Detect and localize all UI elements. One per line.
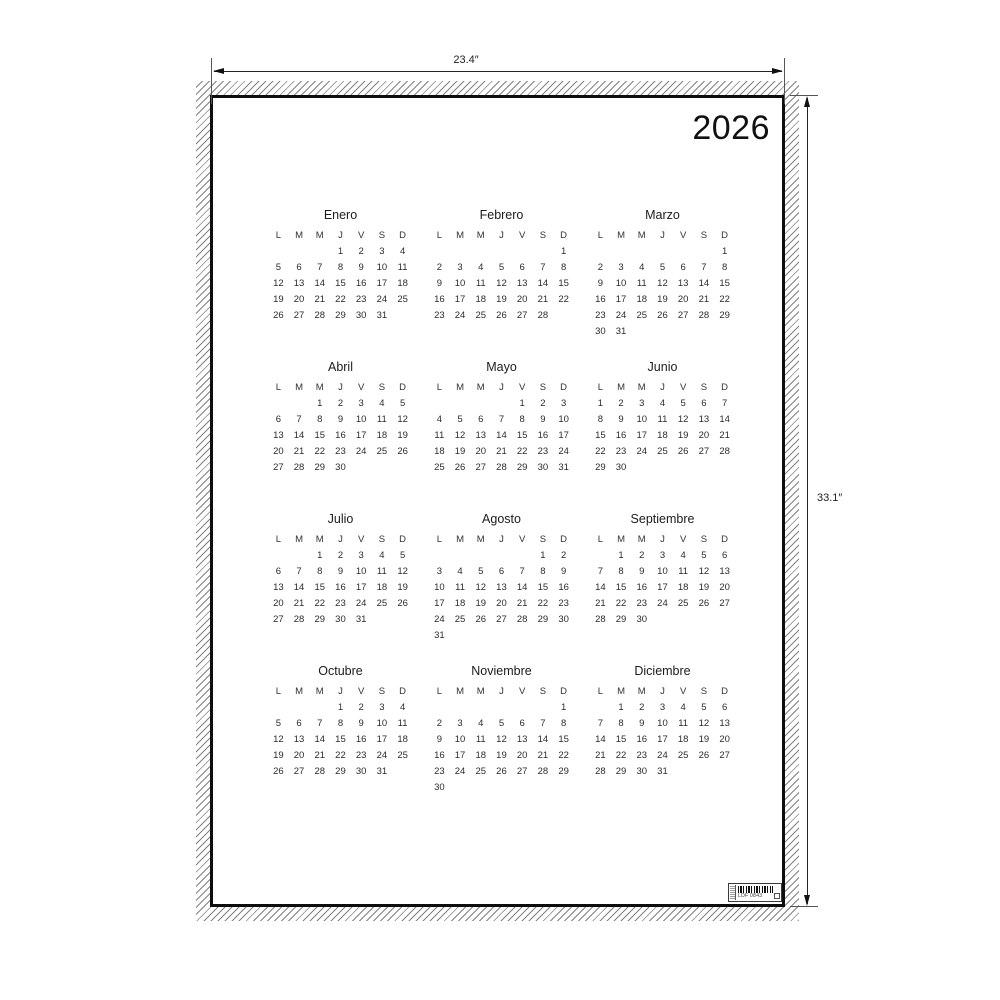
day-cell: 29 (611, 763, 632, 779)
day-cell: 30 (631, 763, 652, 779)
day-cell: 24 (611, 307, 632, 323)
day-cell: 21 (533, 291, 554, 307)
month-block: NoviembreLMMJVSD123456789101112131415161… (429, 661, 574, 813)
empty-day-cell (673, 243, 694, 259)
day-cell: 17 (652, 579, 673, 595)
weekday-header: J (491, 227, 512, 243)
day-cell: 21 (289, 595, 310, 611)
week-row: 11121314151617 (429, 427, 574, 443)
empty-day-cell (470, 699, 491, 715)
day-cell: 25 (392, 747, 413, 763)
day-cell: 4 (673, 547, 694, 563)
height-dimension-label: 33.1″ (814, 492, 845, 504)
day-cell: 1 (590, 395, 611, 411)
day-cell: 14 (590, 579, 611, 595)
day-cell: 12 (491, 275, 512, 291)
day-cell: 4 (372, 547, 393, 563)
month-table: LMMJVSD123456789101112131415161718192021… (429, 379, 574, 475)
weekday-header: S (533, 531, 554, 547)
week-row: 13141516171819 (268, 427, 413, 443)
week-row: 1 (590, 243, 735, 259)
empty-day-cell (512, 547, 533, 563)
day-cell: 21 (309, 747, 330, 763)
empty-day-cell (590, 243, 611, 259)
weekday-header: S (694, 683, 715, 699)
week-row: 123 (429, 395, 574, 411)
empty-day-cell (429, 699, 450, 715)
day-cell: 13 (289, 275, 310, 291)
week-row: 123456 (590, 699, 735, 715)
day-cell: 7 (309, 715, 330, 731)
week-row: 2345678 (429, 715, 574, 731)
weekday-header: M (450, 683, 471, 699)
day-cell: 8 (553, 259, 574, 275)
weekday-header: S (372, 379, 393, 395)
weekday-header: D (392, 683, 413, 699)
week-row: 2930 (590, 459, 735, 475)
month-title: Marzo (590, 205, 735, 225)
weekday-header: M (631, 379, 652, 395)
empty-day-cell (512, 779, 533, 795)
day-cell: 20 (694, 427, 715, 443)
weekday-header: J (491, 683, 512, 699)
day-cell: 5 (268, 259, 289, 275)
day-cell: 9 (330, 563, 351, 579)
day-cell: 11 (470, 731, 491, 747)
day-cell: 18 (673, 731, 694, 747)
day-cell: 22 (533, 595, 554, 611)
day-cell: 10 (351, 411, 372, 427)
week-row: 123456 (590, 547, 735, 563)
month-table: LMMJVSD123456789101112131415161718192021… (590, 683, 735, 779)
weekday-header-row: LMMJVSD (429, 683, 574, 699)
day-cell: 20 (491, 595, 512, 611)
day-cell: 1 (309, 547, 330, 563)
month-block: JulioLMMJVSD1234567891011121314151617181… (268, 509, 413, 661)
day-cell: 29 (533, 611, 554, 627)
height-extension-tick-bottom (790, 906, 818, 907)
day-cell: 19 (268, 291, 289, 307)
empty-day-cell (450, 395, 471, 411)
empty-day-cell (450, 779, 471, 795)
empty-day-cell (268, 699, 289, 715)
day-cell: 11 (470, 275, 491, 291)
month-table: LMMJVSD123456789101112131415161718192021… (429, 531, 574, 643)
empty-day-cell (351, 459, 372, 475)
weekday-header: J (652, 531, 673, 547)
day-cell: 3 (631, 395, 652, 411)
day-cell: 8 (714, 259, 735, 275)
day-cell: 7 (491, 411, 512, 427)
weekday-header: M (309, 531, 330, 547)
day-cell: 27 (714, 747, 735, 763)
day-cell: 15 (512, 427, 533, 443)
barcode-icon (738, 886, 773, 893)
day-cell: 8 (590, 411, 611, 427)
empty-day-cell (429, 243, 450, 259)
weekday-header: L (590, 531, 611, 547)
week-row: 2345678 (429, 259, 574, 275)
day-cell: 19 (694, 731, 715, 747)
day-cell: 27 (268, 611, 289, 627)
day-cell: 16 (590, 291, 611, 307)
day-cell: 4 (470, 715, 491, 731)
day-cell: 8 (611, 563, 632, 579)
day-cell: 19 (694, 579, 715, 595)
day-cell: 28 (289, 611, 310, 627)
day-cell: 6 (268, 411, 289, 427)
day-cell: 28 (533, 307, 554, 323)
day-cell: 10 (652, 563, 673, 579)
day-cell: 11 (673, 715, 694, 731)
day-cell: 26 (392, 595, 413, 611)
day-cell: 9 (553, 563, 574, 579)
empty-day-cell (309, 699, 330, 715)
weekday-header: D (392, 379, 413, 395)
day-cell: 8 (533, 563, 554, 579)
day-cell: 17 (372, 731, 393, 747)
day-cell: 8 (330, 715, 351, 731)
month-title: Abril (268, 357, 413, 377)
day-cell: 11 (429, 427, 450, 443)
day-cell: 22 (309, 595, 330, 611)
day-cell: 18 (429, 443, 450, 459)
weekday-header: V (512, 379, 533, 395)
weekday-header: V (351, 531, 372, 547)
day-cell: 17 (631, 427, 652, 443)
day-cell: 22 (553, 747, 574, 763)
day-cell: 1 (553, 243, 574, 259)
day-cell: 19 (491, 291, 512, 307)
week-row: 3031 (590, 323, 735, 339)
day-cell: 19 (392, 427, 413, 443)
day-cell: 12 (392, 411, 413, 427)
weekday-header: J (491, 531, 512, 547)
week-row: 1 (429, 243, 574, 259)
day-cell: 1 (611, 547, 632, 563)
month-table: LMMJVSD123456789101112131415161718192021… (429, 227, 574, 323)
day-cell: 25 (470, 763, 491, 779)
week-row: 16171819202122 (429, 747, 574, 763)
empty-day-cell (372, 459, 393, 475)
empty-day-cell (289, 395, 310, 411)
week-row: 3456789 (429, 563, 574, 579)
day-cell: 25 (372, 595, 393, 611)
day-cell: 10 (351, 563, 372, 579)
day-cell: 19 (268, 747, 289, 763)
day-cell: 1 (309, 395, 330, 411)
empty-day-cell (553, 307, 574, 323)
day-cell: 3 (450, 715, 471, 731)
month-table: LMMJVSD123456789101112131415161718192021… (429, 683, 574, 795)
weekday-header: M (289, 683, 310, 699)
year-title: 2026 (692, 109, 770, 148)
day-cell: 16 (631, 579, 652, 595)
day-cell: 20 (268, 595, 289, 611)
day-cell: 4 (673, 699, 694, 715)
weekday-header-row: LMMJVSD (590, 379, 735, 395)
day-cell: 25 (450, 611, 471, 627)
weekday-header: D (553, 379, 574, 395)
day-cell: 24 (553, 443, 574, 459)
day-cell: 22 (512, 443, 533, 459)
weekday-header: V (351, 227, 372, 243)
day-cell: 10 (631, 411, 652, 427)
weekday-header: L (268, 531, 289, 547)
day-cell: 15 (330, 731, 351, 747)
day-cell: 7 (512, 563, 533, 579)
day-cell: 17 (351, 427, 372, 443)
day-cell: 3 (372, 243, 393, 259)
day-cell: 6 (673, 259, 694, 275)
empty-day-cell (694, 611, 715, 627)
day-cell: 15 (611, 731, 632, 747)
day-cell: 23 (533, 443, 554, 459)
day-cell: 8 (553, 715, 574, 731)
day-cell: 1 (330, 243, 351, 259)
weekday-header: V (512, 227, 533, 243)
empty-day-cell (392, 611, 413, 627)
day-cell: 25 (652, 443, 673, 459)
day-cell: 4 (429, 411, 450, 427)
weekday-header: S (533, 227, 554, 243)
week-row: 1234 (268, 243, 413, 259)
day-cell: 30 (590, 323, 611, 339)
day-cell: 12 (491, 731, 512, 747)
day-cell: 6 (268, 563, 289, 579)
width-dimension-label: 23.4″ (428, 54, 504, 66)
week-row: 12131415161718 (268, 731, 413, 747)
day-cell: 31 (611, 323, 632, 339)
day-cell: 26 (268, 307, 289, 323)
weekday-header: L (268, 379, 289, 395)
day-cell: 22 (309, 443, 330, 459)
weekday-header: J (652, 683, 673, 699)
month-table: LMMJVSD123456789101112131415161718192021… (590, 227, 735, 339)
day-cell: 29 (553, 763, 574, 779)
day-cell: 3 (351, 547, 372, 563)
empty-day-cell (491, 243, 512, 259)
day-cell: 12 (652, 275, 673, 291)
week-row: 6789101112 (268, 563, 413, 579)
day-cell: 24 (652, 595, 673, 611)
day-cell: 15 (309, 579, 330, 595)
day-cell: 9 (351, 259, 372, 275)
day-cell: 31 (652, 763, 673, 779)
day-cell: 18 (673, 579, 694, 595)
weekday-header: D (553, 531, 574, 547)
weekday-header: L (268, 227, 289, 243)
weekday-header: S (533, 379, 554, 395)
day-cell: 16 (429, 747, 450, 763)
month-title: Julio (268, 509, 413, 529)
day-cell: 22 (611, 747, 632, 763)
day-cell: 21 (289, 443, 310, 459)
month-block: AgostoLMMJVSD123456789101112131415161718… (429, 509, 574, 661)
day-cell: 10 (372, 715, 393, 731)
week-row: 1 (429, 699, 574, 715)
weekday-header-row: LMMJVSD (590, 683, 735, 699)
day-cell: 14 (289, 427, 310, 443)
month-block: MayoLMMJVSD12345678910111213141516171819… (429, 357, 574, 509)
day-cell: 26 (694, 747, 715, 763)
day-cell: 14 (289, 579, 310, 595)
day-cell: 25 (392, 291, 413, 307)
day-cell: 23 (631, 595, 652, 611)
day-cell: 26 (491, 307, 512, 323)
empty-day-cell (631, 243, 652, 259)
day-cell: 14 (491, 427, 512, 443)
day-cell: 2 (553, 547, 574, 563)
weekday-header: V (673, 531, 694, 547)
empty-day-cell (533, 243, 554, 259)
day-cell: 5 (392, 547, 413, 563)
empty-day-cell (553, 779, 574, 795)
day-cell: 4 (392, 243, 413, 259)
weekday-header: M (309, 683, 330, 699)
day-cell: 28 (533, 763, 554, 779)
day-cell: 30 (553, 611, 574, 627)
empty-day-cell (470, 547, 491, 563)
day-cell: 23 (631, 747, 652, 763)
weekday-header: M (470, 683, 491, 699)
day-cell: 21 (694, 291, 715, 307)
empty-day-cell (590, 547, 611, 563)
weekday-header: J (330, 227, 351, 243)
empty-day-cell (450, 627, 471, 643)
month-table: LMMJVSD123456789101112131415161718192021… (590, 531, 735, 627)
label-middle: LDF 0843 (736, 884, 774, 901)
day-cell: 28 (309, 763, 330, 779)
day-cell: 11 (673, 563, 694, 579)
day-cell: 29 (512, 459, 533, 475)
day-cell: 12 (268, 275, 289, 291)
weekday-header: D (714, 227, 735, 243)
empty-day-cell (491, 627, 512, 643)
day-cell: 12 (694, 715, 715, 731)
week-row: 12131415161718 (268, 275, 413, 291)
week-row: 9101112131415 (590, 275, 735, 291)
weekday-header: J (330, 531, 351, 547)
week-row: 10111213141516 (429, 579, 574, 595)
weekday-header: J (330, 683, 351, 699)
empty-day-cell (309, 243, 330, 259)
day-cell: 13 (268, 579, 289, 595)
weekday-header: V (351, 379, 372, 395)
day-cell: 7 (590, 715, 611, 731)
day-cell: 25 (673, 595, 694, 611)
empty-day-cell (673, 611, 694, 627)
week-row: 262728293031 (268, 763, 413, 779)
week-row: 891011121314 (590, 411, 735, 427)
day-cell: 31 (372, 307, 393, 323)
day-cell: 20 (714, 731, 735, 747)
empty-day-cell (470, 395, 491, 411)
week-row: 23242526272829 (429, 763, 574, 779)
weekday-header-row: LMMJVSD (268, 531, 413, 547)
day-cell: 23 (351, 747, 372, 763)
day-cell: 2 (330, 547, 351, 563)
weekday-header: D (392, 227, 413, 243)
day-cell: 17 (450, 291, 471, 307)
day-cell: 2 (611, 395, 632, 411)
weekday-header: S (533, 683, 554, 699)
weekday-header: M (309, 379, 330, 395)
day-cell: 26 (652, 307, 673, 323)
day-cell: 17 (429, 595, 450, 611)
day-cell: 30 (631, 611, 652, 627)
day-cell: 5 (652, 259, 673, 275)
day-cell: 4 (392, 699, 413, 715)
day-cell: 10 (450, 275, 471, 291)
day-cell: 9 (631, 563, 652, 579)
day-cell: 19 (652, 291, 673, 307)
day-cell: 6 (714, 699, 735, 715)
day-cell: 24 (372, 747, 393, 763)
weekday-header: M (450, 379, 471, 395)
day-cell: 23 (553, 595, 574, 611)
month-title: Agosto (429, 509, 574, 529)
day-cell: 10 (652, 715, 673, 731)
day-cell: 14 (309, 275, 330, 291)
day-cell: 17 (372, 275, 393, 291)
empty-day-cell (392, 459, 413, 475)
width-extension-tick-left (211, 58, 212, 104)
day-cell: 14 (694, 275, 715, 291)
weekday-header: M (289, 531, 310, 547)
weekday-header: L (429, 683, 450, 699)
day-cell: 22 (714, 291, 735, 307)
day-cell: 21 (491, 443, 512, 459)
product-label: LDF 0843 (728, 883, 782, 902)
day-cell: 23 (330, 595, 351, 611)
day-cell: 12 (392, 563, 413, 579)
day-cell: 25 (631, 307, 652, 323)
day-cell: 16 (330, 427, 351, 443)
day-cell: 5 (491, 715, 512, 731)
day-cell: 13 (694, 411, 715, 427)
day-cell: 29 (309, 459, 330, 475)
empty-day-cell (289, 243, 310, 259)
day-cell: 26 (470, 611, 491, 627)
weekday-header-row: LMMJVSD (590, 531, 735, 547)
weekday-header: M (470, 531, 491, 547)
day-cell: 27 (491, 611, 512, 627)
day-cell: 2 (590, 259, 611, 275)
day-cell: 5 (268, 715, 289, 731)
day-cell: 20 (289, 747, 310, 763)
day-cell: 16 (631, 731, 652, 747)
week-row: 9101112131415 (429, 275, 574, 291)
width-dimension-line (214, 71, 782, 72)
day-cell: 22 (590, 443, 611, 459)
day-cell: 28 (289, 459, 310, 475)
empty-day-cell (631, 459, 652, 475)
day-cell: 15 (533, 579, 554, 595)
week-row: 21222324252627 (590, 747, 735, 763)
day-cell: 31 (351, 611, 372, 627)
month-table: LMMJVSD123456789101112131415161718192021… (268, 379, 413, 475)
day-cell: 5 (470, 563, 491, 579)
weekday-header: M (309, 227, 330, 243)
week-row: 14151617181920 (590, 579, 735, 595)
weekday-header: M (631, 683, 652, 699)
day-cell: 20 (268, 443, 289, 459)
weekday-header: S (372, 683, 393, 699)
day-cell: 11 (392, 715, 413, 731)
day-cell: 28 (714, 443, 735, 459)
day-cell: 27 (268, 459, 289, 475)
